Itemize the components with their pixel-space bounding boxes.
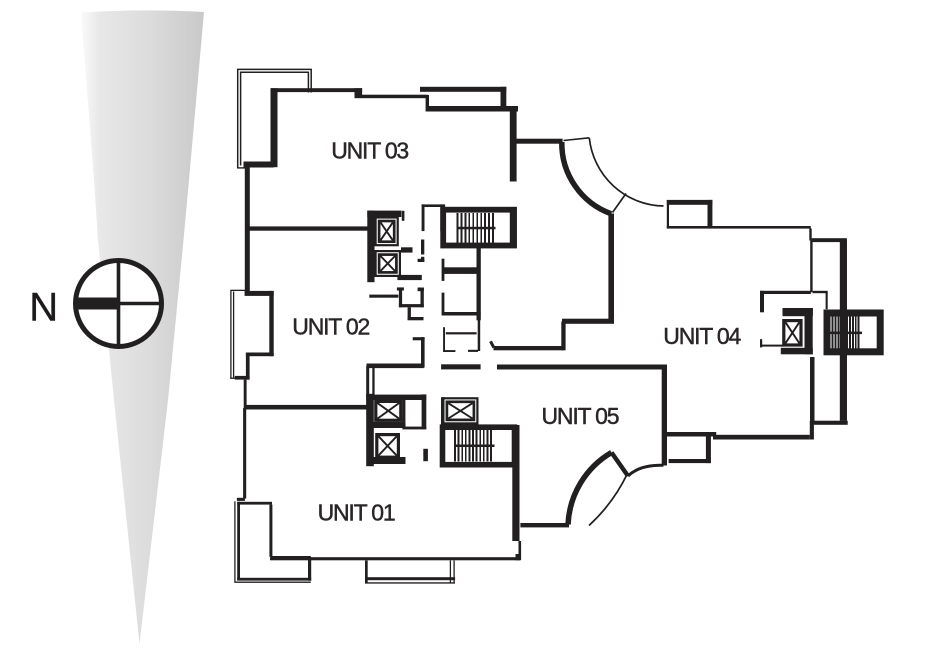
svg-text:UNIT 05: UNIT 05 — [542, 403, 619, 429]
svg-text:UNIT 03: UNIT 03 — [331, 138, 408, 164]
svg-text:UNIT 01: UNIT 01 — [318, 500, 395, 526]
svg-text:UNIT 04: UNIT 04 — [663, 323, 741, 349]
svg-text:UNIT 02: UNIT 02 — [292, 314, 369, 340]
svg-text:N: N — [29, 286, 58, 330]
